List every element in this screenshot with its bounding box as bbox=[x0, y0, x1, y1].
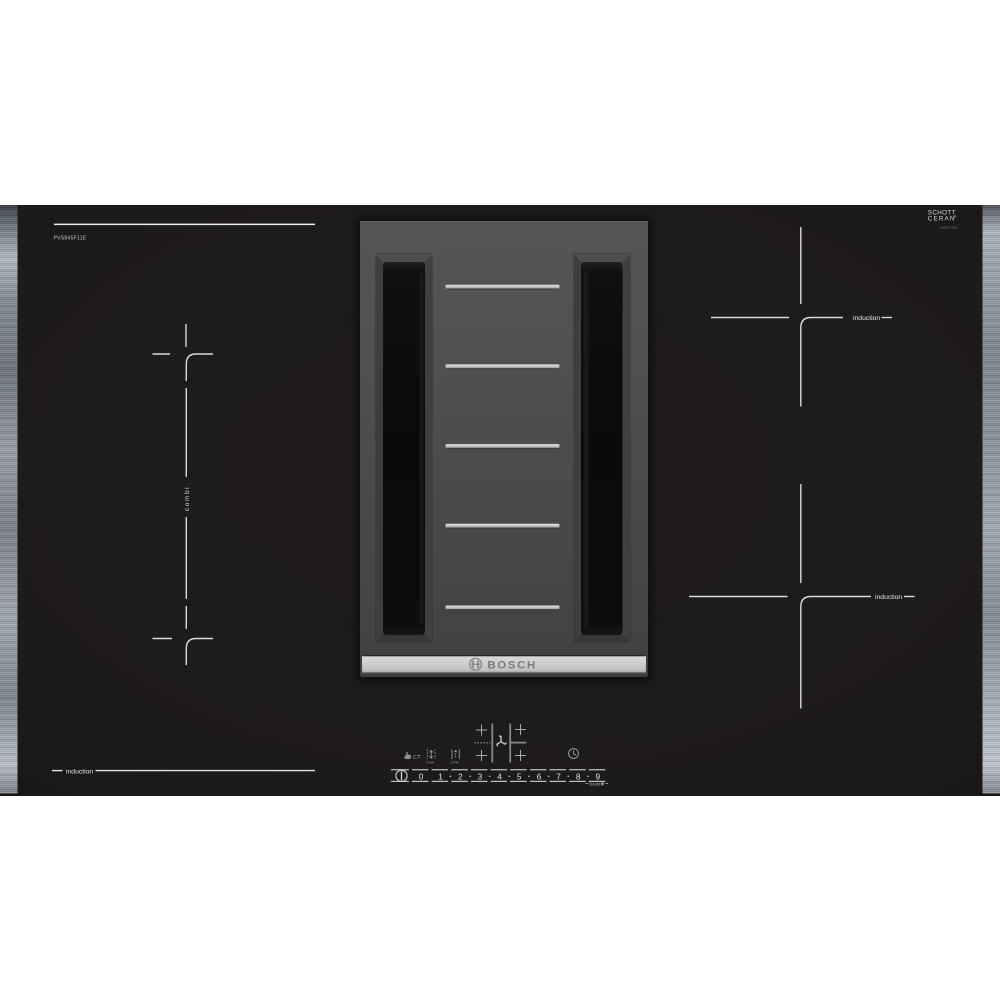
svg-text:PVS845F11E: PVS845F11E bbox=[54, 236, 87, 242]
svg-text:induction: induction bbox=[853, 315, 880, 322]
svg-text:CERAN: CERAN bbox=[928, 215, 956, 222]
svg-text:2: 2 bbox=[458, 772, 463, 782]
svg-text:4: 4 bbox=[497, 772, 502, 782]
svg-text:BOSCH: BOSCH bbox=[488, 660, 537, 672]
svg-text:5: 5 bbox=[517, 772, 522, 782]
svg-text:1: 1 bbox=[438, 772, 443, 782]
svg-text:0: 0 bbox=[419, 772, 424, 782]
svg-text:9: 9 bbox=[595, 772, 600, 782]
svg-text:INDUCTION: INDUCTION bbox=[941, 225, 958, 229]
svg-text:induction: induction bbox=[875, 594, 902, 601]
svg-text:7: 7 bbox=[556, 772, 561, 782]
svg-text:6: 6 bbox=[537, 772, 542, 782]
svg-text:combi: combi bbox=[450, 760, 459, 764]
svg-text:C: C bbox=[413, 755, 417, 761]
svg-text:move: move bbox=[426, 760, 434, 764]
svg-text:combi: combi bbox=[184, 486, 191, 511]
svg-text:8: 8 bbox=[576, 772, 581, 782]
svg-text:3: 3 bbox=[478, 772, 483, 782]
svg-text:boost: boost bbox=[590, 782, 602, 787]
svg-text:induction: induction bbox=[66, 768, 93, 775]
